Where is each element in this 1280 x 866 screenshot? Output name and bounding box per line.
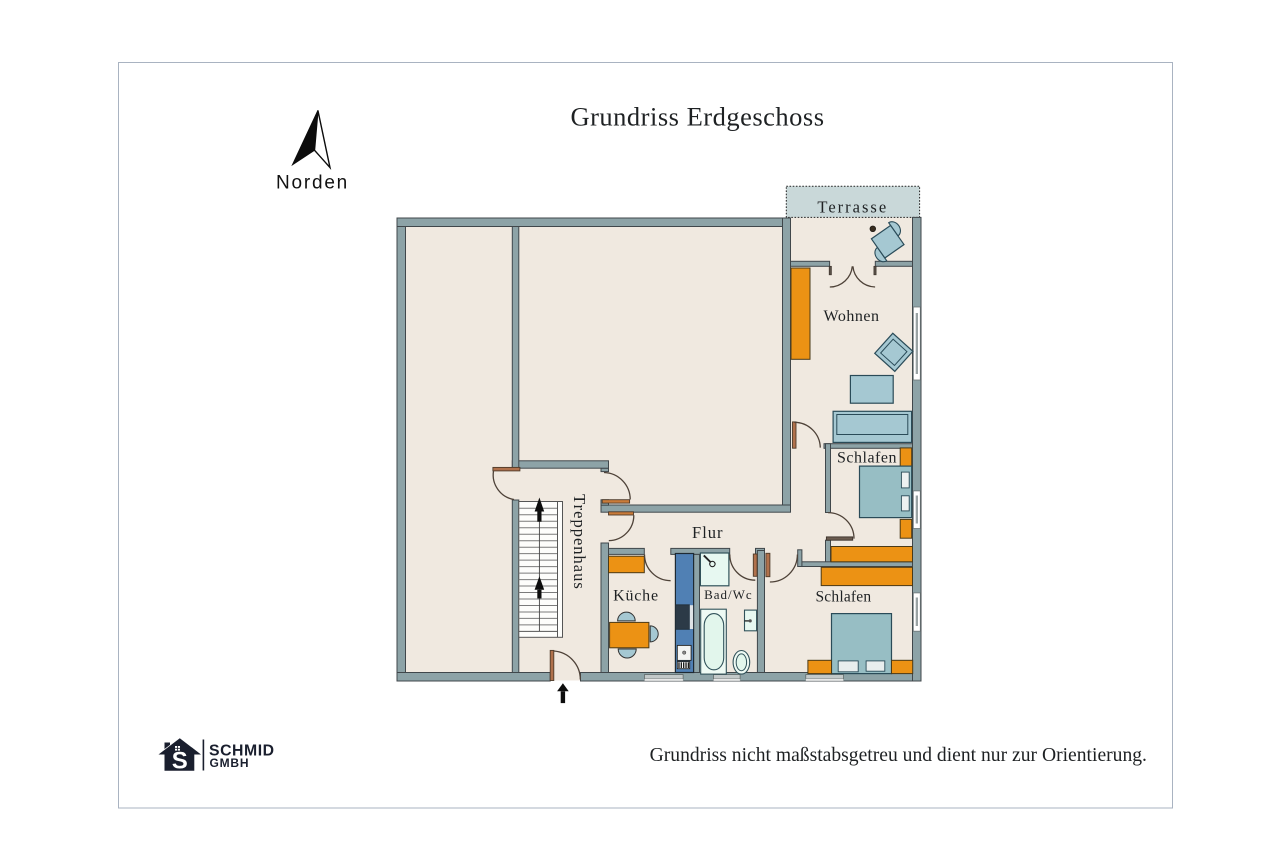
svg-text:Grundriss Erdgeschoss: Grundriss Erdgeschoss	[570, 102, 824, 132]
svg-text:Bad/Wc: Bad/Wc	[704, 587, 753, 602]
svg-text:Grundriss nicht maßstabsgetreu: Grundriss nicht maßstabsgetreu und dient…	[650, 745, 1147, 766]
svg-text:Schlafen: Schlafen	[815, 589, 871, 606]
svg-text:Norden: Norden	[276, 173, 349, 194]
svg-text:Wohnen: Wohnen	[824, 308, 880, 325]
svg-text:GMBH: GMBH	[210, 756, 250, 770]
svg-text:Schlafen: Schlafen	[837, 450, 897, 467]
svg-text:Treppenhaus: Treppenhaus	[570, 494, 589, 590]
svg-text:Flur: Flur	[692, 523, 724, 542]
svg-text:S: S	[172, 748, 188, 775]
svg-text:Küche: Küche	[613, 588, 659, 605]
svg-text:Terrasse: Terrasse	[817, 198, 888, 217]
